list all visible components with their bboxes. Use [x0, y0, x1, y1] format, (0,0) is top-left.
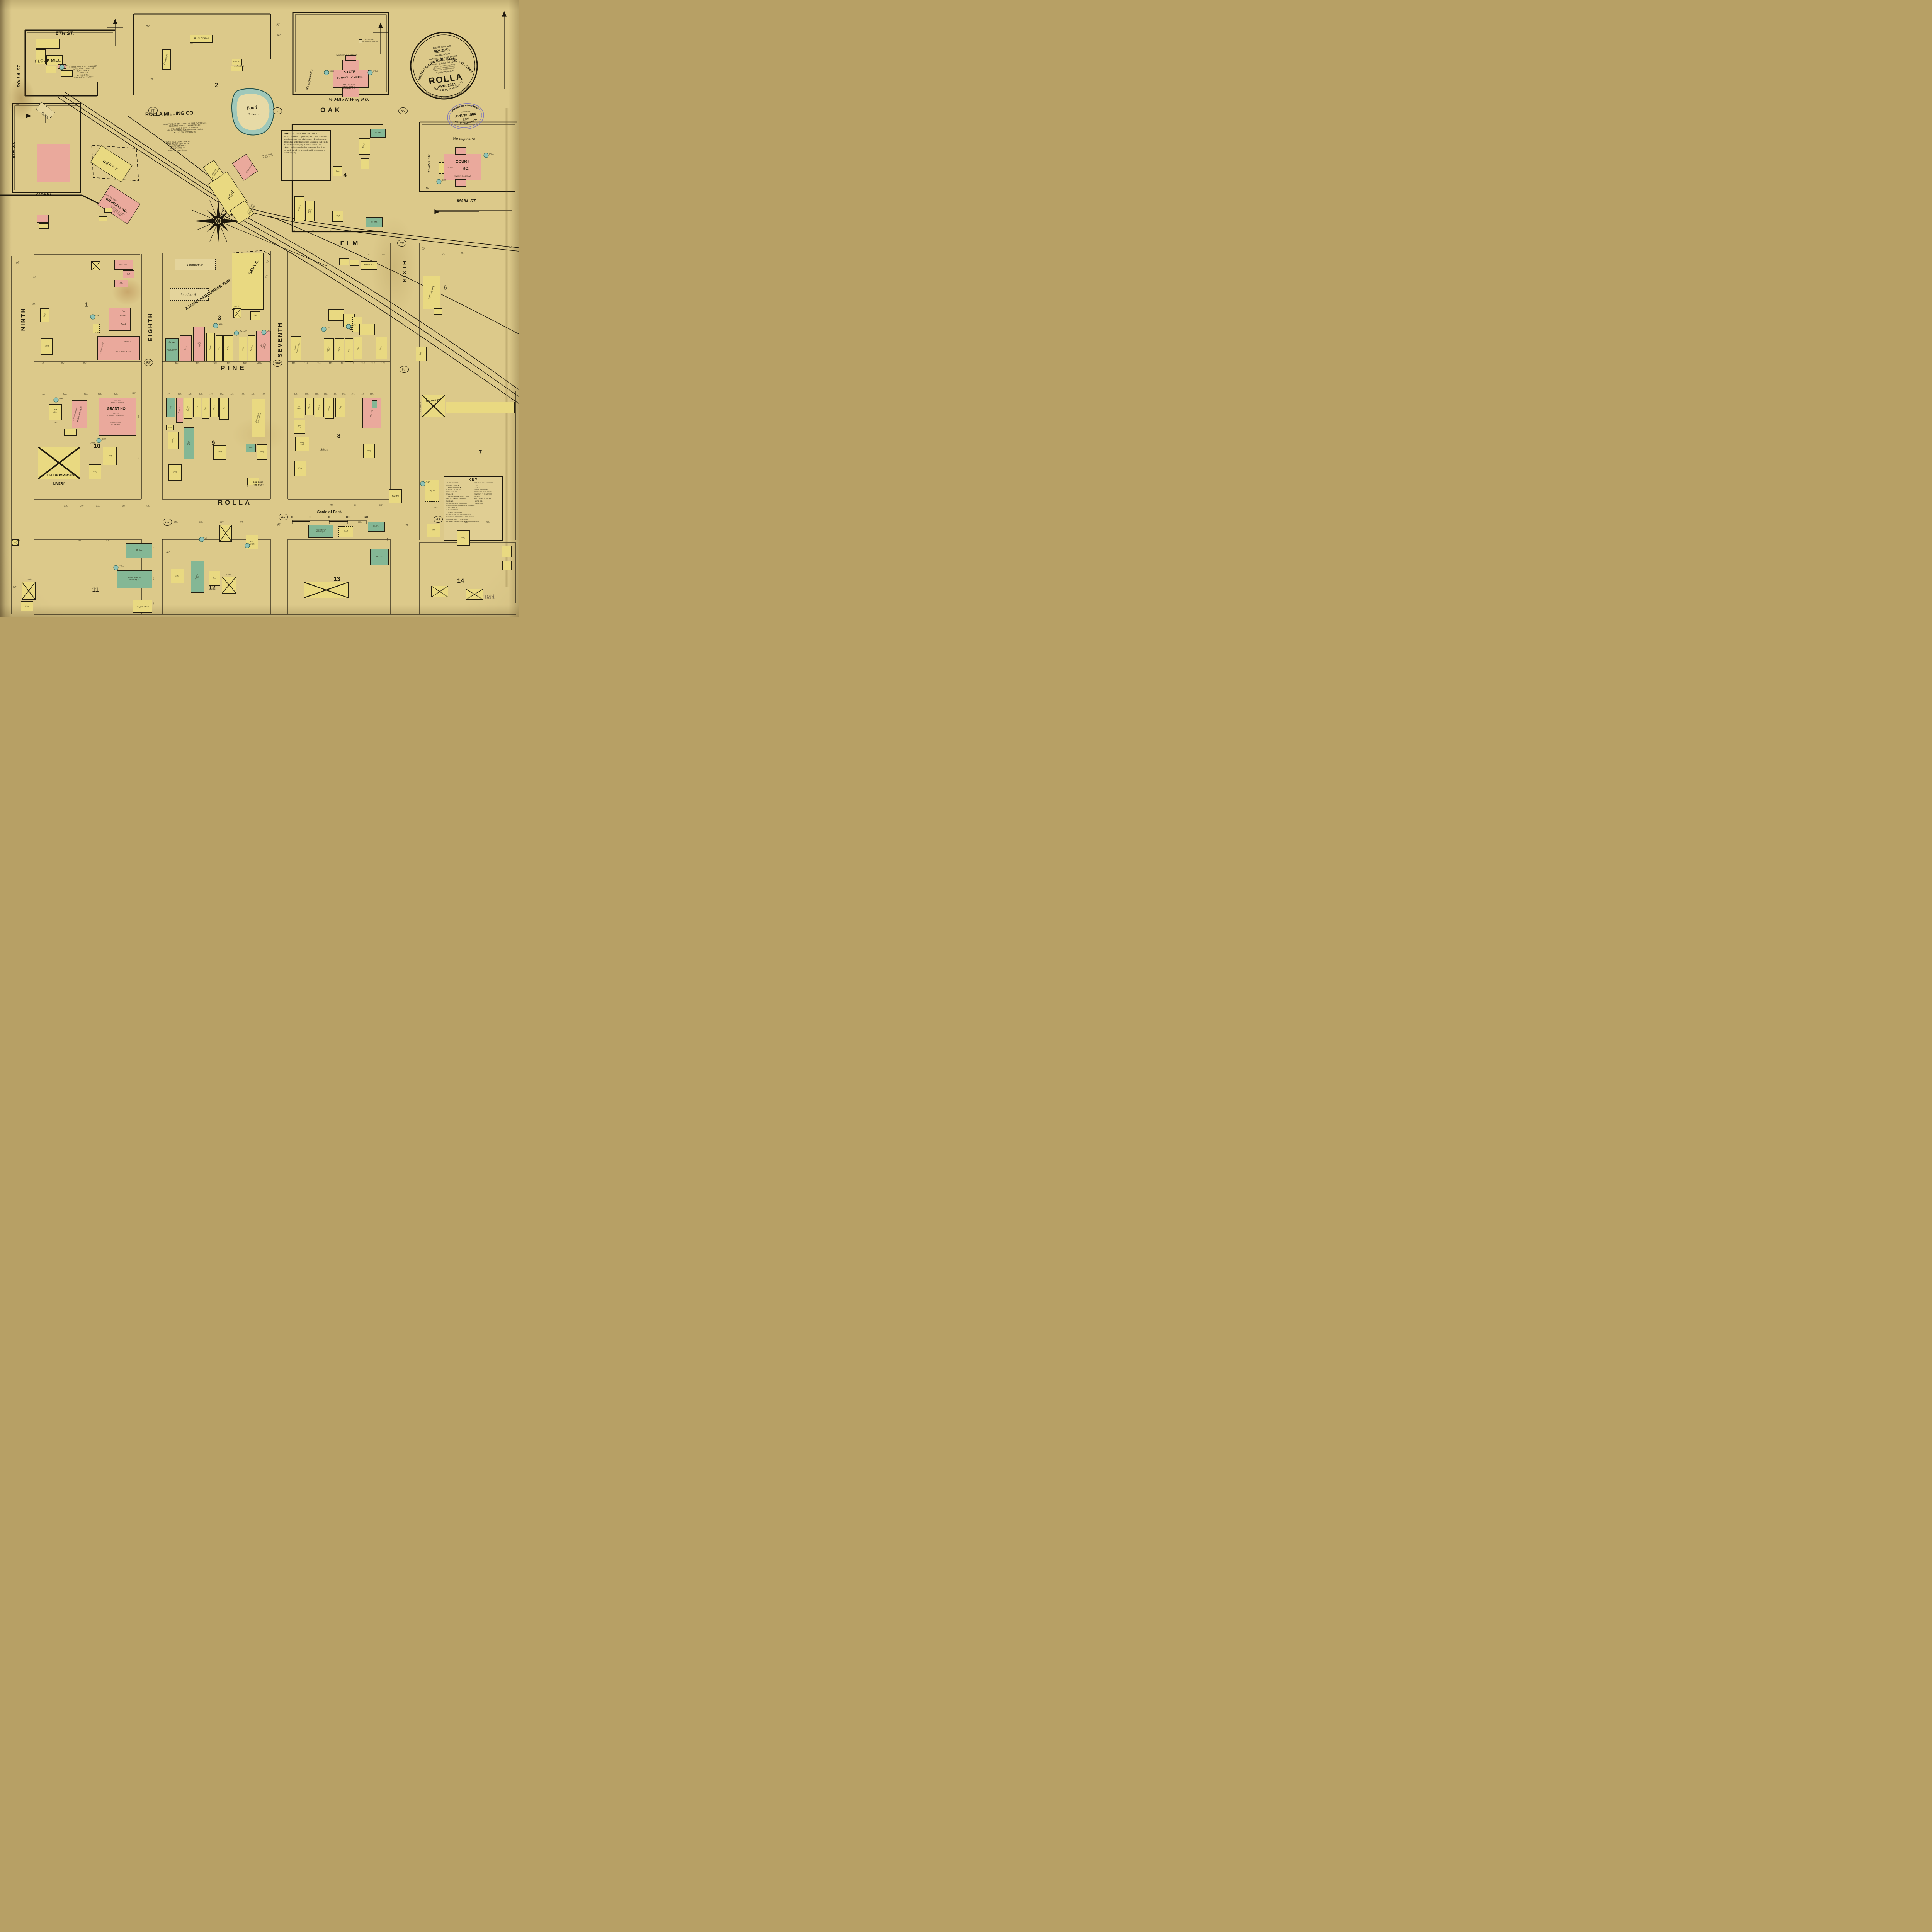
map-label: Plows	[392, 495, 399, 497]
map-label: Board'g 2°	[364, 264, 374, 266]
building	[304, 582, 349, 598]
building-label: Hardw.	[172, 438, 174, 443]
cistern-marker: CIST	[199, 537, 204, 542]
map-label: STREET	[35, 191, 52, 196]
building	[446, 402, 515, 413]
lot-number: 116.	[340, 362, 344, 364]
map-label: BUILDING FIRE DEPT	[253, 482, 264, 487]
loc-handwritten-number: 9127	[463, 117, 469, 121]
key-row: " 2ND & 4TH "	[474, 502, 501, 505]
building-label: Dwg	[196, 406, 198, 410]
building-dwg: Dwg	[21, 601, 33, 611]
scale-bar-title: Scale of Feet.	[317, 510, 342, 514]
lot-number: 16.	[303, 230, 305, 232]
building-label: Gro.	[242, 347, 245, 351]
building-bt-sm-: Bt. Sm.	[370, 129, 386, 138]
building-restaur-t: Restaur't	[206, 333, 215, 361]
lot-number: 109-10.	[256, 362, 263, 364]
lot-number: 104.	[175, 362, 179, 364]
lot-number: 201.	[64, 505, 68, 507]
building-dwg: Dwg	[335, 398, 345, 417]
building-clo-: Clo.	[219, 398, 229, 420]
cistern-marker: CIST.	[321, 327, 327, 332]
lot-number: 145.	[361, 393, 364, 395]
map-label: HO.	[463, 167, 469, 171]
building-gro-: Gro.	[202, 398, 209, 419]
building-label: Gro.	[170, 406, 172, 410]
building-label: Dwg 1½	[429, 490, 435, 492]
building-label: Bt. Sm.	[375, 133, 381, 134]
lot-number: 129.	[188, 393, 192, 395]
map-label: 9	[212, 440, 215, 447]
well-marker: WELL	[368, 70, 373, 75]
lot-number: 123.	[84, 393, 88, 395]
lot-number: 216½.	[27, 579, 32, 581]
building	[439, 162, 444, 174]
marker-label: CIST.	[96, 315, 100, 316]
building	[434, 308, 442, 315]
lot-number: 25.	[461, 252, 463, 254]
building-label: Bak'y Dwg	[300, 442, 304, 446]
building-label: Coal	[344, 531, 348, 533]
building-dwg: Dwg	[171, 569, 184, 583]
building-dwg: Dwg	[332, 211, 343, 222]
map-label: SIXTH	[401, 259, 408, 282]
building-label: Shoe S.	[308, 404, 311, 409]
marker-label: WELL.	[219, 323, 224, 325]
key-row: BROKEN LINES NEAR BLDG: WOOD CORNICE	[446, 520, 501, 523]
building-label: Bt. Sm.	[371, 221, 377, 223]
building-label: Dwg	[93, 471, 97, 473]
map-label: STATE	[344, 70, 355, 75]
building-label: W.Ho.	[168, 427, 172, 429]
map-label: Gro.& D.G. 1&2°	[115, 351, 131, 354]
marker-label: CIST	[267, 330, 271, 332]
well-marker: WELL	[324, 70, 329, 75]
scale-tick-label: 100	[346, 516, 349, 519]
pond	[232, 89, 274, 135]
building-harness: Harness	[325, 398, 334, 419]
lot-number: 107.	[227, 362, 231, 364]
lot-number: 218.	[174, 521, 178, 523]
notice-title: NOTICE.	[284, 133, 294, 135]
building	[372, 400, 377, 408]
building-tailor-dwg: Tailor Dwg	[294, 420, 305, 434]
map-label: 10	[94, 443, 100, 451]
cistern-marker: CIST	[420, 481, 425, 486]
lot-number: 60'	[405, 524, 408, 527]
lot-number: 138.	[294, 393, 298, 395]
map-label: 12	[209, 585, 216, 592]
lot-number: 60'	[150, 78, 153, 81]
building-label: Dwg	[108, 455, 112, 457]
map-label: 6TH ST.	[12, 141, 17, 158]
building-gro-: Gro.	[223, 335, 233, 361]
cistern-marker: CIST.	[437, 179, 442, 184]
map-label: MAIN ST.	[457, 199, 477, 204]
lot-number: 115.	[329, 362, 333, 364]
building-label: Gen'l S. W.Ho.	[327, 346, 331, 352]
building-label: Dwg	[367, 450, 371, 452]
building-label: Dwg	[260, 451, 264, 453]
lot-number: 309½.	[95, 332, 100, 334]
lot-number: 60'	[16, 103, 19, 105]
lot-number: 305.	[138, 457, 140, 460]
lot-number: 141.	[324, 393, 327, 395]
building-dwg: Dwg	[363, 444, 375, 458]
building-label: Dwg	[461, 537, 465, 539]
building-label: Bt. Sm.	[373, 526, 379, 528]
building-bt-sm-: Bt. Sm.	[368, 522, 385, 532]
lot-number: 213.	[434, 507, 438, 509]
circled-number: 85	[163, 519, 172, 526]
marker-label: WELL	[330, 70, 335, 72]
building-label: Clo. Off. 2°	[197, 341, 201, 347]
lot-number: 216.	[105, 540, 109, 542]
cistern-marker: CIST.	[346, 324, 351, 329]
map-label: 1	[85, 302, 88, 309]
lot-number: 130.	[199, 393, 202, 395]
building	[455, 179, 466, 187]
building-dwg: Dwg	[213, 445, 226, 460]
building-dwg: Dwg	[457, 530, 470, 546]
circled-number: 100'	[273, 360, 282, 367]
lot-number: 108.	[243, 362, 247, 364]
building-label: Vac.	[218, 346, 220, 350]
map-label: OAK	[320, 106, 342, 114]
map-label: 7	[479, 449, 482, 457]
lot-number: 517. 518. 519.	[420, 401, 422, 412]
building-dwg-1-: Dwg 1½	[427, 524, 440, 537]
building-dwg: Dwg	[333, 166, 342, 176]
key-left-column: NO. OF STORIES 3SHINGLE ROOF ✱COMPOS'TN …	[446, 482, 473, 505]
building-label: Bl. Sm.	[136, 549, 143, 552]
well-marker: WELL	[484, 153, 489, 158]
map-label: 5TH ST.	[56, 30, 74, 36]
well-marker: WELL	[60, 65, 65, 70]
lot-number: 17.	[312, 230, 315, 232]
key-row: COUNTING FROM LEFT TO RIGHT WHILE LOOKIN…	[446, 495, 473, 502]
map-label: L.H.THOMPSONS	[47, 473, 74, 477]
lot-number: 121.	[42, 393, 46, 395]
lot-number: 408½.	[234, 306, 239, 308]
building-dwg: Dwg	[40, 308, 49, 322]
lot-number: 508.	[387, 538, 389, 541]
map-label: Hardw.	[124, 341, 131, 344]
map-label: Wagon Shed	[136, 606, 149, 609]
building-drugs: Drugs	[291, 336, 301, 360]
lot-number: 221.	[240, 521, 243, 523]
lot-number: 144.	[351, 393, 355, 395]
lot-number: 24.	[442, 253, 445, 255]
building-label: Dwg	[298, 468, 302, 469]
marker-label: WELL	[373, 70, 378, 72]
map-label: ROLLA	[218, 499, 252, 507]
map-label: WINDOWS ALL AROUND	[454, 175, 471, 177]
building-shoe-s-: Shoe S.	[305, 398, 314, 415]
building	[37, 144, 70, 182]
map-label: GRANT HO.	[107, 407, 127, 411]
building-label: Dwg 1½	[432, 529, 435, 532]
lot-number: 118.	[361, 362, 365, 364]
building-harness: Harness	[248, 335, 255, 361]
circled-number: 85	[273, 107, 282, 114]
lot-number: 90'	[146, 25, 150, 27]
map-label: NINTH	[20, 308, 27, 331]
circled-number: 90	[397, 240, 406, 247]
lot-number: 133.	[230, 393, 234, 395]
building-shoe-s-: Shoe S.	[210, 398, 219, 417]
map-label: Confec.	[120, 315, 127, 316]
map-label: No exposure	[453, 138, 475, 142]
map-label: 14	[457, 578, 464, 585]
circled-number: 65'	[148, 107, 158, 114]
building-label: Dwg	[336, 170, 339, 172]
lot-number: 60'	[166, 551, 170, 554]
building	[502, 546, 512, 557]
building-label: Books Drug 2°	[186, 405, 190, 411]
map-label: 2 RUN STONE. 4 SET ROLLS 1ST EUREKA SMUT…	[69, 65, 97, 79]
lot-number: 119.	[371, 362, 375, 364]
lot-number: 134.	[241, 393, 244, 395]
building-hardw-: Hardw.	[168, 432, 179, 449]
building-label: Gent. S.	[318, 405, 320, 410]
marker-label: CIST.	[442, 179, 446, 181]
lot-number: 102.	[61, 362, 65, 364]
map-label: Lumber 6'	[180, 293, 197, 296]
map-label: 6	[444, 285, 447, 292]
lot-number: 117.	[350, 362, 354, 364]
building-label: Gro. MEAT	[297, 406, 301, 410]
building-vac-: Vac.	[376, 337, 387, 359]
lot-number: 60'	[422, 247, 425, 250]
map-label: FUEL; COAL HEAT; STOVES 1&3	[111, 400, 124, 403]
map-label: 2 RUN STONE. 18 SET ROLLS. 3 FLOUR PACKE…	[162, 122, 208, 134]
building	[502, 561, 512, 570]
building-label: Restaur't	[209, 343, 212, 350]
building-clo-off-2-: Clo. Off. 2°	[193, 327, 205, 361]
building-label: Dwg	[45, 346, 49, 348]
building	[64, 429, 77, 436]
building-label: Dwg	[25, 605, 29, 607]
lot-number: 125.	[114, 393, 118, 395]
map-label: 8' Deep	[248, 113, 259, 116]
map-label: Boarding	[119, 264, 127, 265]
building	[91, 261, 100, 270]
map-label: W. Ho. for Blds	[194, 37, 209, 40]
building	[339, 258, 349, 265]
marker-label: CIST.	[352, 324, 356, 326]
building-bt-sm-: Bt. Sm.	[366, 217, 383, 227]
lot-number: 202.	[80, 505, 84, 507]
building-label: Gen'l S.	[338, 346, 341, 352]
cistern-marker: CIST.	[234, 331, 239, 336]
notice-body: —The SANBORN MAP & PUBLISHING CO. (Limit…	[284, 133, 328, 154]
building-coal: Coal	[338, 526, 353, 537]
lot-number: 136.	[262, 393, 265, 395]
notice-box: NOTICE.—The SANBORN MAP & PUBLISHING CO.…	[281, 130, 331, 181]
lot-number: 101.	[41, 362, 44, 364]
lot-number: 105.	[196, 362, 200, 364]
building-board-g-ho-: Board'g Ho.	[191, 561, 204, 593]
lot-number: 330'	[190, 43, 194, 44]
building-label: Board'g Ho.	[195, 573, 200, 580]
lot-number: 303.	[153, 546, 155, 549]
cistern-marker: CIST.	[90, 315, 95, 320]
building	[328, 309, 344, 321]
map-label: CUPOLA	[447, 167, 453, 168]
lot-number: 215.	[17, 540, 20, 542]
lot-number: 301.	[153, 601, 155, 605]
map-label: GASOLINE TANK UNDERGROUND	[361, 39, 378, 43]
building-label: Gro.	[348, 348, 350, 352]
building-label: Ware Ho.	[187, 441, 191, 446]
map-label: Lumber 5'	[187, 263, 203, 267]
building	[431, 586, 448, 597]
map-label: HEAT; STOVES FRENCH ROOF. GASOLINE GAS.	[342, 83, 355, 90]
marker-label: CIST.	[327, 327, 331, 329]
building-barber-2-: Barber 2°	[176, 398, 183, 423]
building-gro-: Gro.	[416, 347, 427, 361]
building-label: Dwg	[218, 452, 222, 454]
lot-number: 124.	[98, 393, 102, 395]
lot-number: 106.	[213, 362, 217, 364]
building-gen-l-s-: Gen'l S.	[335, 338, 344, 360]
building-bak-y-dwg: Bak'y Dwg	[295, 437, 309, 451]
scale-tick-label: 0	[309, 516, 310, 519]
circled-number: 83	[434, 516, 443, 523]
marker-label: CIST.	[240, 331, 244, 333]
map-label: ELM	[340, 240, 360, 247]
lot-number: 114.	[317, 362, 321, 364]
map-label: Bank	[121, 323, 126, 326]
map-label: Sal.	[127, 273, 131, 275]
building-gen-l-s-w-ho-: Gen'l S. W.Ho.	[324, 338, 334, 360]
building	[39, 223, 49, 229]
lot-number: 15.	[293, 230, 296, 232]
lot-number: 224.	[464, 521, 468, 523]
building-label: Dwg	[175, 575, 179, 577]
map-label: CISTERN UNDER 1ST 400 BBLS	[110, 422, 121, 425]
marker-label: CIST.	[250, 543, 255, 545]
building-label: Dwg	[44, 313, 46, 317]
lot-number: 135.	[251, 393, 255, 395]
building-label: Gro.	[204, 406, 207, 410]
building-w-ho-: W.Ho.	[166, 425, 174, 430]
building-label: Dwg	[173, 472, 177, 474]
map-label: COURT	[456, 159, 469, 164]
building	[466, 589, 483, 600]
building-label: Dwg	[253, 315, 257, 316]
lot-number: 25.	[33, 276, 36, 278]
map-label: 13	[333, 576, 340, 583]
building	[359, 324, 375, 335]
map-label: WINDOWS ALL AROUND	[336, 54, 357, 56]
lot-number: 60'	[277, 34, 281, 37]
building-dwg: Dwg	[103, 447, 117, 465]
lot-number: 146.	[370, 393, 373, 395]
lot-number: 127.	[167, 393, 170, 395]
map-label: Ice Ho.	[53, 409, 57, 414]
lot-number: 18.	[330, 230, 333, 232]
circled-number: 85	[398, 107, 408, 114]
lot-number: 103.	[83, 362, 87, 364]
building-books-drug-2-: Books Drug 2°	[184, 398, 192, 419]
building-dwg: Dwg	[168, 464, 182, 481]
building-label: Barber 2°	[178, 407, 181, 413]
lot-number: 140.	[315, 393, 318, 395]
building-label: 1½	[27, 590, 30, 592]
building-dwg: Dwg	[41, 338, 53, 355]
marker-label: WELL	[489, 153, 494, 155]
building-label: Dwg	[336, 216, 340, 218]
building-dwg: Dwg	[209, 571, 220, 586]
map-label: Lodge Hall	[234, 65, 244, 67]
building-dwg: Dwg	[294, 461, 306, 476]
lot-number: 23.	[382, 253, 385, 255]
lot-number: 22.	[366, 254, 369, 256]
map-label: FLOUR MILL	[35, 58, 61, 64]
scale-tick-label: 150	[364, 516, 368, 519]
lot-number: 142.	[333, 393, 336, 395]
building-label: Harness	[250, 345, 253, 352]
building-gro-: Gro.	[239, 337, 247, 361]
map-label: LIVERY	[53, 481, 65, 485]
building-label: Clo.	[223, 407, 225, 411]
cistern-marker: CIST.	[97, 438, 102, 443]
building-dwg: Dwg	[257, 444, 267, 460]
map-label: 3	[218, 315, 221, 322]
scale-tick-label: 50	[328, 516, 330, 519]
building-dwg: Dwg	[246, 444, 256, 452]
lot-number: 132.	[220, 393, 223, 395]
map-label: CITY	[247, 484, 249, 488]
lot-number: 223.	[358, 521, 362, 523]
circled-number: 85	[279, 514, 288, 520]
lot-number: 123½.	[53, 422, 58, 423]
map-label: ½ Mile N.W of P.O.	[329, 98, 369, 102]
lot-number: 24.	[32, 303, 35, 305]
map-label: Gun Sm.	[233, 61, 241, 63]
building-1-: 1½	[22, 582, 36, 600]
building-label: Vac.	[357, 346, 360, 350]
building	[99, 216, 107, 221]
building	[350, 260, 359, 266]
marker-label: WELL	[119, 565, 124, 567]
circled-number: 90'	[144, 359, 153, 366]
building-label: Dwg	[213, 578, 216, 580]
key-title: KEY	[446, 478, 501, 482]
lot-number: 306.	[138, 415, 140, 418]
building-dwg: Dwg	[193, 398, 201, 417]
map-label: ROLLA ST.	[17, 64, 22, 87]
lot-number: 113.	[304, 362, 308, 364]
map-label: SEVENTH	[277, 322, 284, 357]
marker-label: CIST	[205, 537, 209, 539]
cistern-marker: CIST.	[245, 543, 250, 548]
lot-number: 211.	[354, 504, 358, 506]
building-gro-: Gro.	[345, 338, 353, 362]
map-label: PINE	[221, 364, 247, 372]
well-marker: WELL.	[213, 323, 218, 328]
building-dwg: Dwg	[89, 464, 101, 479]
building-ware-ho-: Ware Ho.	[184, 427, 194, 459]
map-label: 4	[344, 172, 347, 180]
lot-number: 404½.	[226, 574, 232, 576]
building-label: Gro.	[227, 346, 230, 350]
lot-number: 128.	[178, 393, 181, 395]
key-bottom-rows: BLDGS COLORED YELLOW ARE FRAME" " RED " …	[446, 504, 501, 522]
